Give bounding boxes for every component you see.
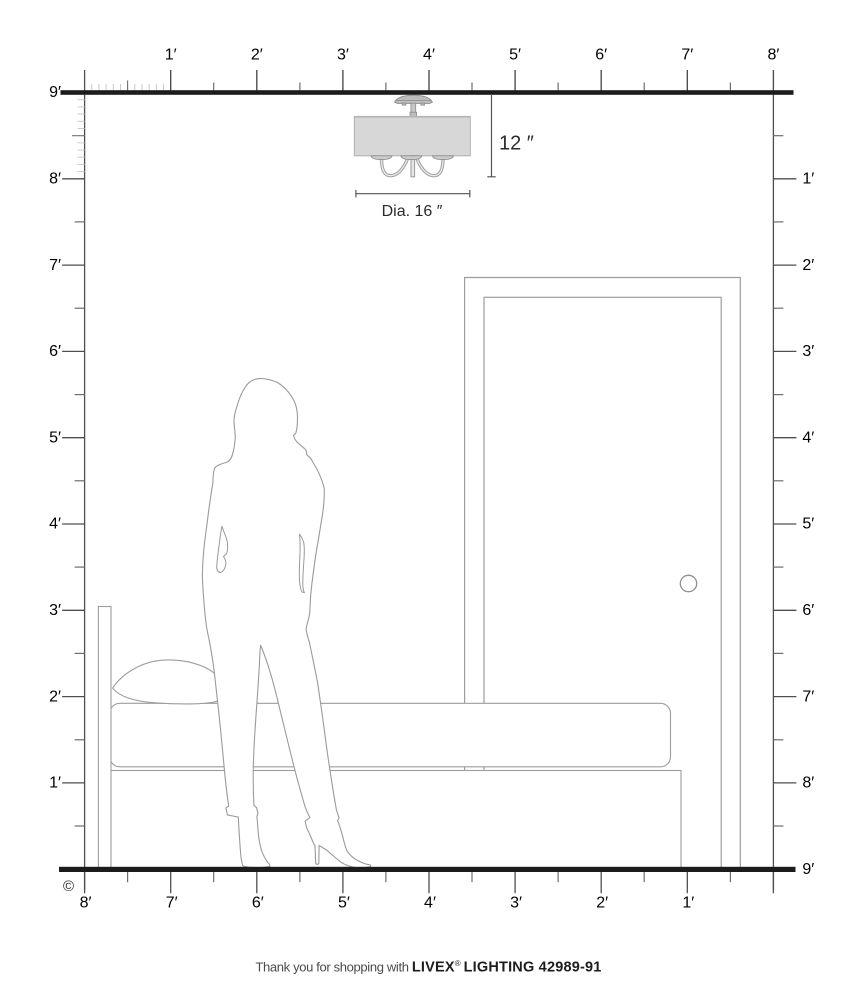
svg-text:2′: 2′	[596, 895, 608, 912]
svg-text:8′: 8′	[49, 171, 61, 188]
svg-text:8′: 8′	[80, 895, 92, 912]
svg-text:12 ″: 12 ″	[499, 133, 534, 155]
svg-text:5′: 5′	[509, 47, 521, 64]
svg-text:7′: 7′	[49, 257, 61, 274]
svg-text:5′: 5′	[49, 429, 61, 446]
svg-text:3′: 3′	[337, 47, 349, 64]
svg-text:4′: 4′	[424, 895, 436, 912]
svg-text:7′: 7′	[802, 688, 814, 705]
svg-text:8′: 8′	[767, 47, 779, 64]
svg-text:5′: 5′	[802, 516, 814, 533]
svg-text:4′: 4′	[49, 516, 61, 533]
svg-text:9′: 9′	[802, 861, 814, 878]
svg-text:2′: 2′	[49, 688, 61, 705]
svg-text:2′: 2′	[251, 47, 263, 64]
svg-text:7′: 7′	[166, 895, 178, 912]
svg-text:3′: 3′	[49, 602, 61, 619]
svg-text:3′: 3′	[802, 343, 814, 360]
svg-text:1′: 1′	[49, 775, 61, 792]
svg-text:9′: 9′	[49, 84, 61, 101]
svg-text:8′: 8′	[802, 775, 814, 792]
svg-text:7′: 7′	[681, 47, 693, 64]
svg-text:3′: 3′	[510, 895, 522, 912]
svg-text:6′: 6′	[49, 343, 61, 360]
svg-text:2′: 2′	[802, 257, 814, 274]
svg-text:4′: 4′	[802, 429, 814, 446]
svg-text:4′: 4′	[423, 47, 435, 64]
svg-text:6′: 6′	[595, 47, 607, 64]
svg-text:Dia. 16 ″: Dia. 16 ″	[382, 203, 443, 220]
svg-text:1′: 1′	[682, 895, 694, 912]
svg-text:6′: 6′	[252, 895, 264, 912]
svg-text:©: ©	[63, 878, 74, 895]
svg-text:1′: 1′	[165, 47, 177, 64]
svg-text:6′: 6′	[802, 602, 814, 619]
svg-text:1′: 1′	[802, 171, 814, 188]
svg-text:5′: 5′	[338, 895, 350, 912]
